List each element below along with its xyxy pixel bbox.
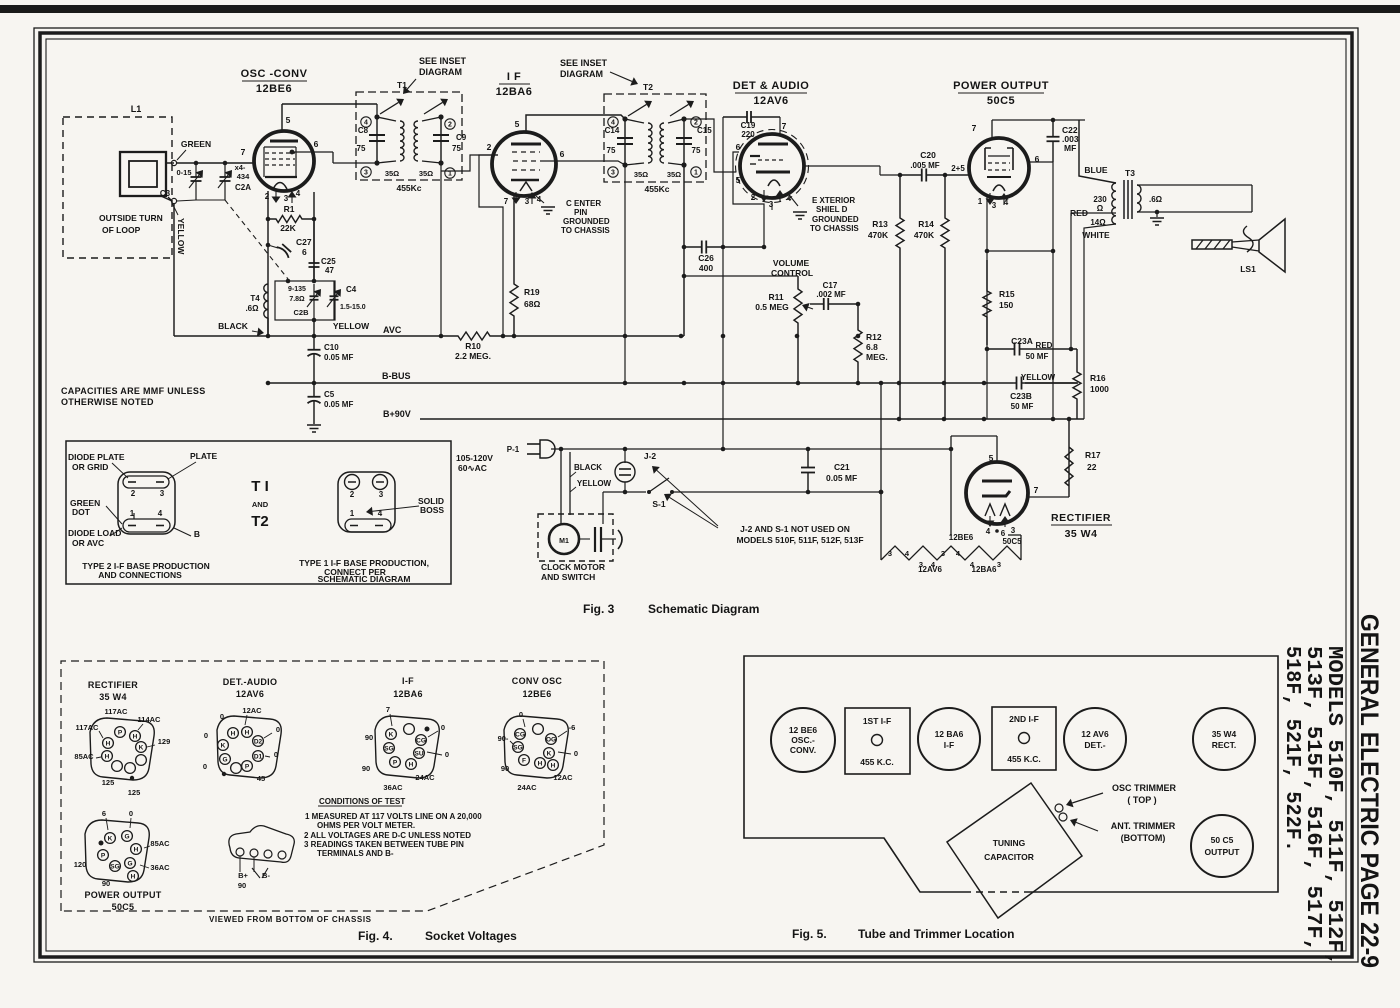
svg-text:P: P [245, 764, 250, 771]
svg-text:VOLUME: VOLUME [773, 258, 810, 268]
svg-text:SG: SG [513, 745, 522, 752]
svg-text:1: 1 [130, 509, 135, 518]
svg-text:Fig. 3: Fig. 3 [583, 602, 615, 616]
svg-text:2: 2 [350, 490, 355, 499]
svg-text:35Ω: 35Ω [385, 169, 399, 178]
svg-text:x4-: x4- [235, 163, 246, 172]
svg-text:R14: R14 [918, 219, 934, 229]
svg-text:120: 120 [74, 860, 87, 869]
svg-text:TUNING: TUNING [993, 838, 1026, 848]
svg-text:0: 0 [129, 809, 133, 818]
svg-text:0: 0 [204, 731, 208, 740]
svg-text:2ND I-F: 2ND I-F [1009, 714, 1039, 724]
svg-text:6: 6 [302, 247, 307, 257]
svg-text:BLUE: BLUE [1084, 165, 1107, 175]
svg-text:1: 1 [978, 197, 983, 206]
svg-text:455Kc: 455Kc [396, 183, 421, 193]
svg-text:50C5: 50C5 [112, 902, 135, 912]
svg-text:1ST I-F: 1ST I-F [863, 716, 891, 726]
svg-text:H: H [409, 762, 414, 769]
svg-text:68Ω: 68Ω [524, 299, 540, 309]
svg-text:K: K [221, 743, 226, 750]
svg-text:470K: 470K [868, 230, 889, 240]
svg-text:.002 MF: .002 MF [816, 290, 845, 299]
svg-text:85AC: 85AC [150, 839, 170, 848]
svg-text:CAPACITOR: CAPACITOR [984, 852, 1034, 862]
svg-text:117AC: 117AC [76, 723, 100, 732]
svg-text:DOT: DOT [72, 507, 91, 517]
svg-text:1 MEASURED AT 117 VOLTS LINE O: 1 MEASURED AT 117 VOLTS LINE ON A 20,000 [305, 812, 482, 821]
svg-text:0: 0 [574, 749, 578, 758]
svg-text:T3: T3 [1125, 168, 1135, 178]
svg-text:H: H [106, 741, 111, 748]
svg-text:C4: C4 [346, 285, 357, 294]
svg-text:.6Ω: .6Ω [1149, 195, 1163, 204]
svg-text:SEE INSET: SEE INSET [560, 58, 608, 68]
svg-text:OUTSIDE TURN: OUTSIDE TURN [99, 213, 163, 223]
svg-text:5: 5 [736, 175, 741, 185]
svg-text:Tube and Trimmer Location: Tube and Trimmer Location [858, 927, 1014, 941]
svg-text:2 ALL VOLTAGES ARE D-C UNLE: 2 ALL VOLTAGES ARE D-C UNLESS NOTED [304, 831, 471, 840]
svg-text:AND: AND [252, 500, 269, 509]
svg-text:Schematic Diagram: Schematic Diagram [648, 602, 759, 616]
svg-text:7: 7 [386, 705, 390, 714]
svg-text:R16: R16 [1090, 373, 1106, 383]
svg-text:90: 90 [238, 881, 246, 890]
svg-text:47: 47 [325, 266, 334, 275]
svg-text:0.05 MF: 0.05 MF [324, 353, 353, 362]
svg-text:GREEN: GREEN [181, 139, 211, 149]
svg-text:PLATE: PLATE [190, 451, 218, 461]
svg-text:H: H [134, 847, 139, 854]
svg-text:C9: C9 [456, 133, 467, 142]
svg-text:TO CHASSIS: TO CHASSIS [561, 226, 610, 235]
svg-text:I-F: I-F [944, 740, 954, 750]
svg-text:CG: CG [416, 738, 426, 745]
svg-text:45: 45 [257, 774, 265, 783]
svg-text:OUTPUT: OUTPUT [1205, 847, 1241, 857]
svg-text:105-120V: 105-120V [456, 453, 493, 463]
svg-text:DIAGRAM: DIAGRAM [560, 69, 603, 79]
svg-text:YELLOW: YELLOW [176, 218, 186, 255]
svg-text:50 C5: 50 C5 [1211, 835, 1234, 845]
svg-text:B+90V: B+90V [383, 409, 411, 419]
svg-text:85AC: 85AC [74, 752, 94, 761]
svg-text:470K: 470K [914, 230, 935, 240]
svg-text:C21: C21 [834, 462, 850, 472]
svg-text:YELLOW: YELLOW [333, 321, 370, 331]
svg-text:Fig. 4.: Fig. 4. [358, 929, 393, 943]
svg-text:7: 7 [782, 121, 787, 131]
svg-text:0: 0 [441, 723, 445, 732]
svg-text:3: 3 [611, 170, 615, 177]
svg-text:OG: OG [546, 737, 556, 744]
svg-text:BLACK: BLACK [218, 321, 249, 331]
svg-text:G: G [124, 834, 129, 841]
svg-text:36AC: 36AC [383, 783, 403, 792]
svg-text:4: 4 [905, 549, 910, 558]
svg-text:125: 125 [128, 788, 141, 797]
svg-text:OF LOOP: OF LOOP [102, 225, 141, 235]
svg-text:7: 7 [1034, 485, 1039, 495]
svg-text:C26: C26 [698, 253, 714, 263]
svg-text:90: 90 [102, 879, 110, 888]
svg-text:GENERAL ELECTRIC PAGE 22-9: GENERAL ELECTRIC PAGE 22-9 [1355, 614, 1383, 968]
svg-text:35Ω: 35Ω [419, 169, 433, 178]
svg-text:60∿AC: 60∿AC [458, 463, 487, 473]
svg-text:3: 3 [160, 489, 165, 498]
svg-text:C8: C8 [358, 126, 369, 135]
svg-text:2+5: 2+5 [951, 164, 965, 173]
svg-text:Socket Voltages: Socket Voltages [425, 929, 517, 943]
svg-text:YELLOW: YELLOW [1021, 373, 1056, 382]
svg-text:T1: T1 [397, 80, 407, 90]
svg-text:PIN: PIN [574, 208, 588, 217]
svg-text:R13: R13 [872, 219, 888, 229]
svg-text:C10: C10 [324, 343, 339, 352]
svg-text:GROUNDED: GROUNDED [812, 215, 859, 224]
svg-text:455Kc: 455Kc [644, 184, 669, 194]
svg-text:3: 3 [1011, 526, 1016, 535]
svg-text:D2: D2 [254, 739, 263, 746]
svg-text:T I: T I [251, 478, 269, 495]
svg-text:SEE INSET: SEE INSET [419, 56, 467, 66]
svg-text:12AC: 12AC [242, 706, 262, 715]
svg-text:S-1: S-1 [652, 499, 666, 509]
svg-text:1.5-15.0: 1.5-15.0 [340, 304, 366, 311]
svg-text:129: 129 [158, 737, 171, 746]
svg-text:M1: M1 [559, 538, 569, 545]
svg-text:3: 3 [992, 201, 997, 210]
svg-text:12 AV6: 12 AV6 [1081, 729, 1109, 739]
svg-text:12AV6: 12AV6 [753, 95, 788, 107]
svg-text:75: 75 [452, 144, 461, 153]
svg-text:CAPACITIES ARE MMF UNLESS: CAPACITIES ARE MMF UNLESS [61, 386, 206, 396]
svg-text:3: 3 [284, 194, 289, 203]
svg-text:C2A: C2A [235, 183, 251, 192]
svg-text:22: 22 [1087, 462, 1097, 472]
svg-text:4: 4 [956, 549, 961, 558]
svg-text:C20: C20 [920, 150, 936, 160]
svg-text:114AC: 114AC [138, 715, 162, 724]
svg-text:24AC: 24AC [517, 783, 537, 792]
svg-text:AND SWITCH: AND SWITCH [541, 572, 595, 582]
svg-text:0: 0 [274, 750, 278, 759]
svg-text:T4: T4 [250, 294, 260, 303]
svg-text:H: H [245, 730, 250, 737]
svg-text:35 W4: 35 W4 [1065, 528, 1098, 540]
svg-text:3: 3 [941, 549, 945, 558]
svg-text:C ENTER: C ENTER [566, 199, 601, 208]
svg-text:H: H [105, 754, 110, 761]
svg-text:H: H [551, 763, 556, 770]
svg-text:2: 2 [751, 193, 756, 202]
svg-text:P: P [118, 730, 123, 737]
svg-text:RECT.: RECT. [1212, 740, 1237, 750]
svg-text:0.05 MF: 0.05 MF [826, 473, 857, 483]
svg-text:6: 6 [736, 142, 741, 152]
svg-text:35 W4: 35 W4 [99, 692, 127, 702]
svg-text:3 READINGS TAKEN BETWEEN TU: 3 READINGS TAKEN BETWEEN TUBE PIN [304, 840, 464, 849]
svg-text:F: F [522, 758, 526, 765]
svg-text:35Ω: 35Ω [667, 170, 681, 179]
svg-text:J-2: J-2 [644, 451, 657, 461]
svg-text:90: 90 [501, 764, 509, 773]
svg-text:2: 2 [131, 489, 136, 498]
svg-text:DET.-AUDIO: DET.-AUDIO [223, 677, 278, 687]
svg-text:6: 6 [314, 139, 319, 149]
svg-text:2: 2 [487, 142, 492, 152]
svg-text:1: 1 [694, 170, 698, 177]
svg-text:SU: SU [414, 751, 423, 758]
svg-text:6.8: 6.8 [866, 342, 878, 352]
svg-text:D1: D1 [254, 754, 263, 761]
svg-text:1: 1 [448, 171, 452, 178]
svg-text:12BE6: 12BE6 [949, 533, 974, 542]
svg-text:-6: -6 [569, 723, 576, 732]
svg-text:CLOCK MOTOR: CLOCK MOTOR [541, 562, 605, 572]
svg-text:400: 400 [699, 263, 713, 273]
svg-text:OR AVC: OR AVC [72, 538, 104, 548]
svg-text:3: 3 [888, 549, 892, 558]
svg-text:K: K [139, 745, 144, 752]
svg-text:P-1: P-1 [507, 445, 520, 454]
svg-text:R10: R10 [465, 341, 481, 351]
svg-text:3: 3 [364, 170, 368, 177]
svg-text:OR GRID: OR GRID [72, 462, 108, 472]
svg-text:GROUNDED: GROUNDED [563, 217, 610, 226]
svg-text:50 MF: 50 MF [1026, 352, 1049, 361]
svg-text:R11: R11 [768, 292, 783, 302]
svg-text:12BE6: 12BE6 [256, 83, 292, 95]
svg-text:22K: 22K [280, 223, 296, 233]
svg-text:C2B: C2B [293, 308, 309, 317]
svg-text:75: 75 [357, 144, 366, 153]
svg-text:CONV.: CONV. [790, 745, 816, 755]
svg-text:7: 7 [504, 197, 509, 206]
svg-text:4: 4 [158, 509, 163, 518]
svg-text:SG: SG [110, 864, 119, 871]
svg-text:BOSS: BOSS [420, 505, 444, 515]
svg-text:C19: C19 [741, 121, 756, 130]
svg-text:518F, 521F, 522F.: 518F, 521F, 522F. [1280, 646, 1303, 852]
svg-text:OHMS PER VOLT METER.: OHMS PER VOLT METER. [317, 821, 415, 830]
svg-text:(BOTTOM): (BOTTOM) [1121, 833, 1166, 843]
svg-text:C27: C27 [296, 237, 312, 247]
svg-text:B-BUS: B-BUS [382, 371, 411, 381]
svg-text:75: 75 [607, 146, 616, 155]
svg-text:6: 6 [102, 809, 106, 818]
svg-text:0: 0 [519, 710, 523, 719]
svg-text:POWER OUTPUT: POWER OUTPUT [84, 890, 161, 900]
svg-text:230: 230 [1093, 195, 1107, 204]
svg-text:24AC: 24AC [415, 773, 435, 782]
svg-text:4: 4 [787, 194, 792, 203]
svg-text:3: 3 [919, 560, 923, 569]
svg-text:12BA6: 12BA6 [972, 565, 997, 574]
svg-text:12AC: 12AC [553, 773, 573, 782]
svg-text:2: 2 [448, 122, 452, 129]
svg-text:0: 0 [445, 750, 449, 759]
svg-text:SHIEL D: SHIEL D [816, 205, 848, 214]
svg-text:G: G [222, 757, 227, 764]
svg-text:OTHERWISE NOTED: OTHERWISE NOTED [61, 397, 154, 407]
svg-text:RECTIFIER: RECTIFIER [88, 680, 138, 690]
svg-text:VIEWED FROM BOTTOM OF CHAS: VIEWED FROM BOTTOM OF CHASSIS [209, 915, 372, 924]
svg-text:SG: SG [384, 746, 393, 753]
svg-text:36AC: 36AC [150, 863, 170, 872]
svg-text:MODELS 510F, 511F, 512F,: MODELS 510F, 511F, 512F, [1322, 646, 1345, 966]
svg-text:1000: 1000 [1090, 384, 1109, 394]
svg-text:I F: I F [507, 71, 521, 83]
svg-text:H: H [538, 761, 543, 768]
svg-text:B: B [194, 529, 200, 539]
svg-text:K: K [108, 836, 113, 843]
svg-text:C17: C17 [823, 281, 838, 290]
svg-text:117AC: 117AC [105, 707, 129, 716]
svg-text:RECTIFIER: RECTIFIER [1051, 512, 1111, 524]
svg-text:T2: T2 [251, 513, 269, 530]
svg-text:C14: C14 [605, 126, 620, 135]
svg-text:35 W4: 35 W4 [1212, 729, 1237, 739]
svg-text:H: H [231, 731, 236, 738]
svg-text:0: 0 [203, 762, 207, 771]
svg-text:50 MF: 50 MF [1011, 402, 1034, 411]
svg-text:( TOP ): ( TOP ) [1127, 795, 1156, 805]
svg-text:Ω: Ω [1097, 204, 1104, 213]
svg-text:B-: B- [262, 871, 270, 880]
svg-text:L1: L1 [131, 104, 142, 114]
svg-text:455 K.C.: 455 K.C. [1007, 754, 1041, 764]
svg-text:C23A: C23A [1011, 336, 1033, 346]
svg-text:TERMINALS AND B-: TERMINALS AND B- [317, 849, 394, 858]
svg-text:0.05 MF: 0.05 MF [324, 400, 353, 409]
svg-text:50C5: 50C5 [1002, 537, 1022, 546]
svg-text:SCHEMATIC DIAGRAM: SCHEMATIC DIAGRAM [318, 574, 411, 584]
svg-text:12AV6: 12AV6 [236, 689, 264, 699]
svg-text:J-2 AND S-1 NOT USED ON: J-2 AND S-1 NOT USED ON [740, 524, 850, 534]
svg-text:220: 220 [741, 130, 755, 139]
svg-text:513F, 515F, 516F, 517F,: 513F, 515F, 516F, 517F, [1301, 646, 1324, 952]
svg-text:R17: R17 [1085, 450, 1101, 460]
svg-text:R15: R15 [999, 289, 1015, 299]
svg-text:C23B: C23B [1010, 391, 1032, 401]
svg-text:MF: MF [1064, 143, 1076, 153]
svg-text:T2: T2 [643, 82, 653, 92]
svg-text:BLACK: BLACK [574, 463, 602, 472]
svg-text:12 BA6: 12 BA6 [935, 729, 964, 739]
svg-text:150: 150 [999, 300, 1013, 310]
svg-text:0: 0 [276, 725, 280, 734]
svg-text:B+: B+ [238, 871, 248, 880]
svg-text:RED: RED [1036, 341, 1053, 350]
svg-text:50C5: 50C5 [987, 95, 1015, 107]
svg-text:CONV OSC: CONV OSC [512, 676, 563, 686]
svg-text:3: 3 [379, 490, 384, 499]
svg-text:R19: R19 [524, 287, 540, 297]
svg-text:R12: R12 [866, 332, 882, 342]
svg-text:2: 2 [265, 192, 270, 201]
svg-text:LS1: LS1 [1240, 264, 1256, 274]
svg-text:0.5 MEG: 0.5 MEG [755, 302, 789, 312]
svg-text:H: H [133, 734, 138, 741]
svg-text:DIODE LOAD: DIODE LOAD [68, 528, 121, 538]
svg-text:DIODE PLATE: DIODE PLATE [68, 452, 125, 462]
svg-text:2.2 MEG.: 2.2 MEG. [455, 351, 491, 361]
svg-text:90: 90 [362, 764, 370, 773]
svg-text:YELLOW: YELLOW [577, 479, 612, 488]
svg-text:6: 6 [560, 149, 565, 159]
svg-text:CG: CG [515, 732, 525, 739]
svg-text:90: 90 [365, 733, 373, 742]
svg-text:434: 434 [237, 172, 250, 181]
svg-text:MODELS 510F, 511F, 512F, 513F: MODELS 510F, 511F, 512F, 513F [736, 535, 863, 545]
svg-text:7.8Ω: 7.8Ω [289, 296, 305, 303]
svg-text:C3: C3 [160, 189, 171, 198]
svg-text:DIAGRAM: DIAGRAM [419, 67, 462, 77]
svg-text:4: 4 [986, 527, 991, 536]
svg-text:AVC: AVC [383, 325, 402, 335]
svg-text:9-135: 9-135 [288, 286, 306, 293]
svg-text:5: 5 [286, 115, 291, 125]
svg-text:0: 0 [220, 712, 224, 721]
svg-text:G: G [127, 861, 132, 868]
svg-text:4: 4 [296, 189, 301, 198]
svg-text:P: P [101, 853, 106, 860]
svg-text:12 BE6: 12 BE6 [789, 725, 818, 735]
svg-text:90-: 90- [498, 734, 509, 743]
svg-text:.005 MF: .005 MF [910, 161, 939, 170]
svg-text:7: 7 [972, 123, 977, 133]
svg-text:R1: R1 [284, 204, 295, 214]
svg-text:75: 75 [692, 146, 701, 155]
svg-text:0-15: 0-15 [176, 168, 191, 177]
svg-text:K: K [547, 751, 552, 758]
svg-text:MEG.: MEG. [866, 352, 888, 362]
svg-text:3: 3 [769, 200, 774, 209]
svg-text:CONDITIONS OF TEST: CONDITIONS OF TEST [319, 797, 405, 806]
svg-text:POWER OUTPUT: POWER OUTPUT [953, 80, 1049, 92]
svg-text:12BA6: 12BA6 [393, 689, 423, 699]
svg-text:OSC.-: OSC.- [791, 735, 815, 745]
svg-text:3: 3 [997, 560, 1001, 569]
svg-text:E XTERIOR: E XTERIOR [812, 196, 855, 205]
svg-text:35Ω: 35Ω [634, 170, 648, 179]
svg-text:7: 7 [241, 147, 246, 157]
svg-text:I-F: I-F [402, 676, 414, 686]
svg-text:5: 5 [515, 119, 520, 129]
svg-text:12BA6: 12BA6 [496, 86, 533, 98]
svg-text:WHITE: WHITE [1082, 230, 1110, 240]
svg-text:OSC -CONV: OSC -CONV [241, 68, 308, 80]
svg-text:AND CONNECTIONS: AND CONNECTIONS [98, 570, 182, 580]
svg-text:12BE6: 12BE6 [522, 689, 551, 699]
svg-text:C25: C25 [321, 257, 336, 266]
svg-text:.6Ω: .6Ω [245, 304, 259, 313]
svg-text:TO CHASSIS: TO CHASSIS [810, 224, 859, 233]
svg-text:P: P [393, 760, 398, 767]
svg-text:455 K.C.: 455 K.C. [860, 757, 894, 767]
svg-text:K: K [389, 732, 394, 739]
svg-text:OSC TRIMMER: OSC TRIMMER [1112, 783, 1176, 793]
svg-text:ANT. TRIMMER: ANT. TRIMMER [1111, 821, 1176, 831]
svg-text:Fig. 5.: Fig. 5. [792, 927, 827, 941]
svg-text:DET.-: DET.- [1084, 740, 1105, 750]
svg-text:DET & AUDIO: DET & AUDIO [733, 80, 810, 92]
svg-text:1: 1 [350, 509, 355, 518]
svg-text:C15: C15 [697, 126, 712, 135]
svg-text:H: H [131, 874, 136, 881]
